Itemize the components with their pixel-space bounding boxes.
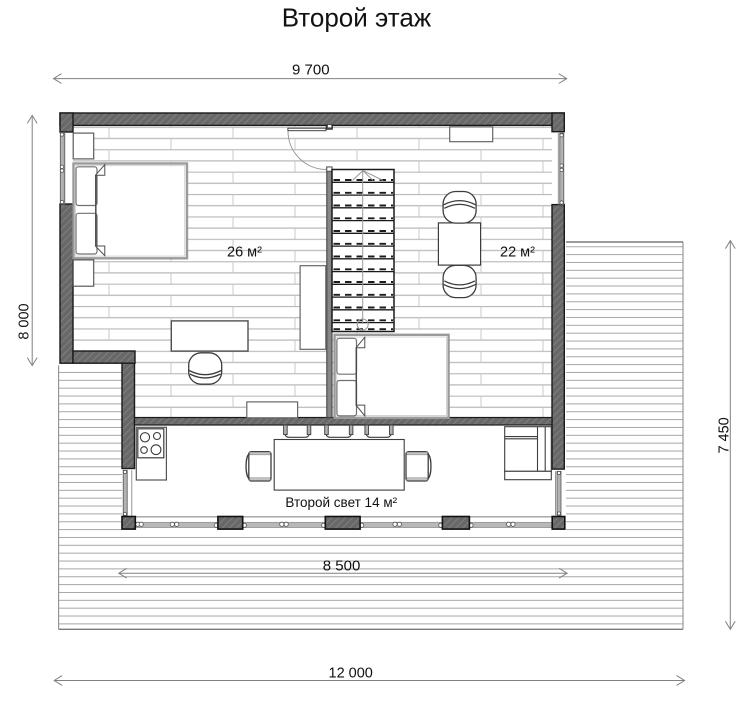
svg-text:8 500: 8 500 — [323, 557, 361, 574]
svg-text:Второй свет 14 м²: Второй свет 14 м² — [285, 495, 397, 510]
svg-text:8 000: 8 000 — [16, 303, 32, 339]
svg-text:9 700: 9 700 — [292, 62, 330, 79]
svg-text:26 м²: 26 м² — [227, 245, 262, 261]
svg-text:7 450: 7 450 — [716, 417, 732, 453]
svg-text:22 м²: 22 м² — [500, 245, 535, 261]
svg-text:12 000: 12 000 — [329, 666, 373, 682]
svg-text:Второй этаж: Второй этаж — [282, 3, 432, 33]
